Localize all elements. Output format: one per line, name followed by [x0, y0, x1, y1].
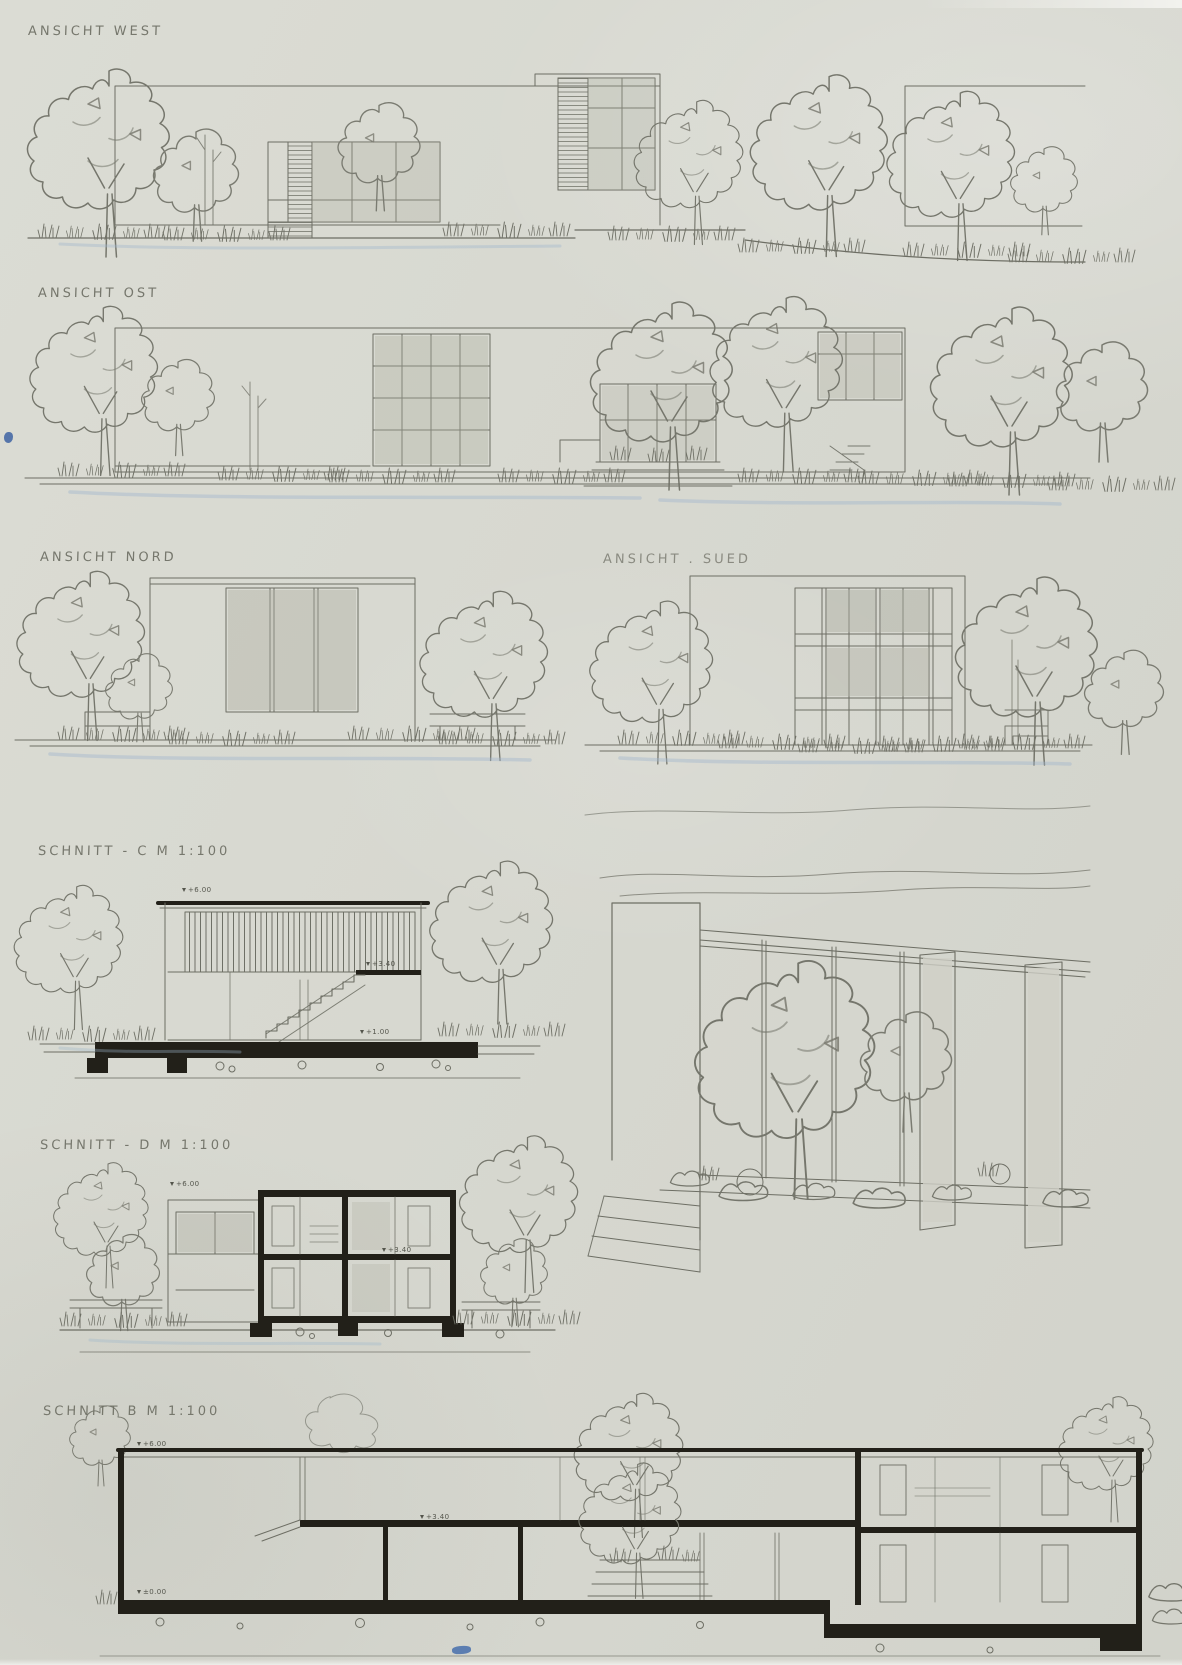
- perspective-steps: [588, 1196, 700, 1272]
- label-schnitt-b: SCHNITT B M 1:100: [43, 1404, 221, 1419]
- perspective-sketch: [585, 806, 1090, 1272]
- elevation-south: [585, 576, 1163, 765]
- photo-of-drawing-sheet: ANSICHT WEST ANSICHT OST ANSICHT NORD AN…: [0, 0, 1182, 1665]
- level-mark-c-mid: +3.40: [366, 960, 395, 968]
- label-schnitt-c: SCHNITT - C M 1:100: [38, 844, 231, 859]
- perspective-courtyard-tree: [695, 961, 952, 1199]
- elevation-east-ground: [25, 462, 1175, 504]
- label-ansicht-west: ANSICHT WEST: [28, 24, 163, 39]
- photo-edge-highlight-bottom: [0, 1659, 1182, 1665]
- section-b: [70, 1393, 1182, 1656]
- label-ansicht-sued: ANSICHT . SUED: [603, 552, 751, 567]
- section-b-trees: [70, 1393, 1182, 1624]
- level-mark-b-mid: +3.40: [420, 1513, 449, 1521]
- elevation-north: [15, 571, 565, 760]
- photo-edge-highlight-top: [922, 0, 1182, 8]
- elevation-south-ground: [585, 730, 1092, 764]
- section-d-structure: [168, 1190, 456, 1323]
- elevation-north-ground: [15, 726, 565, 760]
- section-c: [14, 861, 565, 1078]
- level-mark-b-zero: ±0.00: [137, 1588, 166, 1596]
- section-b-structure: [118, 1450, 1142, 1626]
- label-ansicht-ost: ANSICHT OST: [38, 286, 160, 301]
- perspective-building: [612, 903, 1090, 1248]
- perspective-planting: [670, 1162, 1088, 1208]
- elevation-west-trees: [27, 69, 1077, 260]
- section-d-trees: [54, 1136, 578, 1331]
- section-d-ground: [60, 1300, 580, 1352]
- level-mark-c-low: +1.00: [360, 1028, 389, 1036]
- label-ansicht-nord: ANSICHT NORD: [40, 550, 177, 565]
- level-mark-c-top: +6.00: [182, 886, 211, 894]
- label-schnitt-d: SCHNITT - D M 1:100: [40, 1138, 234, 1153]
- elevation-east-trees: [30, 297, 1148, 495]
- level-mark-d-mid: +3.40: [382, 1246, 411, 1254]
- level-mark-b-top: +6.00: [137, 1440, 166, 1448]
- elevation-west: [27, 69, 1135, 263]
- section-d: [54, 1136, 580, 1352]
- elevation-south-building: [690, 576, 1048, 745]
- elevation-east: [25, 297, 1175, 504]
- level-mark-d-top: +6.00: [170, 1180, 199, 1188]
